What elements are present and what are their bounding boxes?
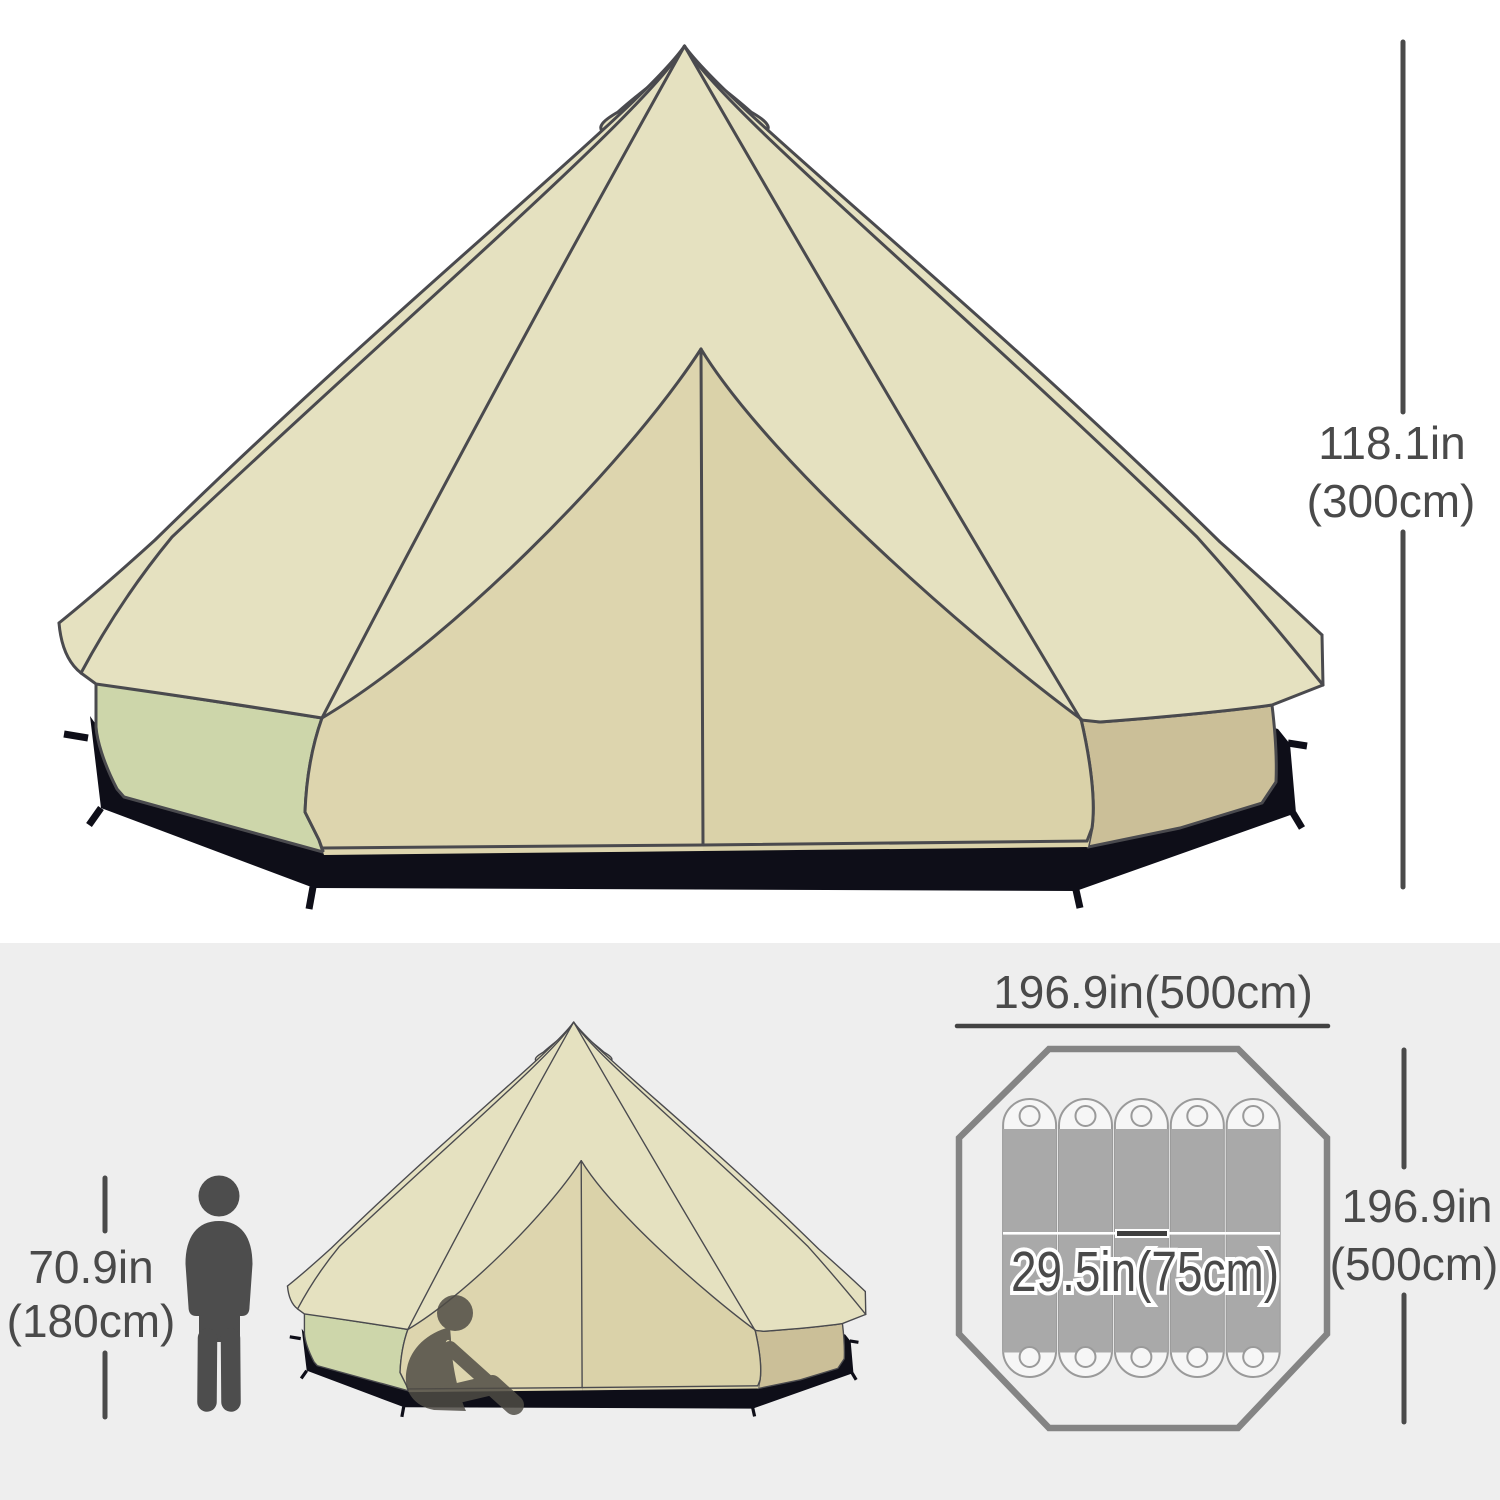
svg-text:(180cm): (180cm) [7, 1295, 176, 1347]
svg-text:196.9in(500cm): 196.9in(500cm) [993, 966, 1313, 1018]
svg-text:196.9in: 196.9in [1342, 1180, 1493, 1232]
svg-text:29.5in(75cm): 29.5in(75cm) [1011, 1240, 1279, 1304]
svg-text:(300cm): (300cm) [1307, 475, 1476, 527]
svg-text:118.1in: 118.1in [1318, 417, 1466, 469]
svg-text:(500cm): (500cm) [1330, 1238, 1499, 1290]
svg-text:70.9in: 70.9in [28, 1241, 153, 1293]
